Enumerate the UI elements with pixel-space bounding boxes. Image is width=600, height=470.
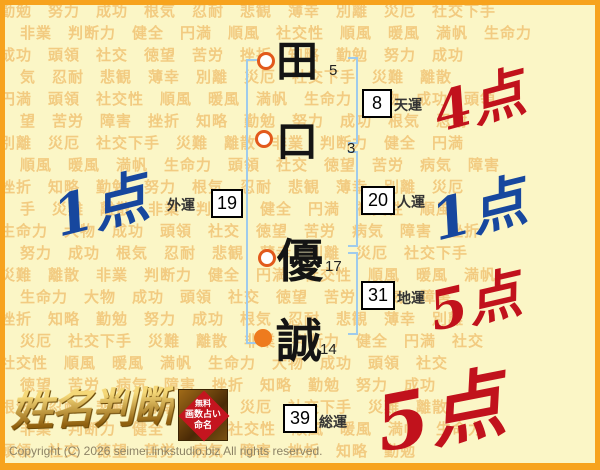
total-luck-score: 5点 <box>365 341 513 470</box>
givenname-char1-circle-icon <box>258 249 276 267</box>
bracket-heaven-luck <box>348 57 358 144</box>
seimei-result-page: 勤勉 努力 成功 根気 忍耐 悲観 薄幸 別離 災厄 社交下手非業 判断力 健全… <box>0 0 600 470</box>
seal-line3: 命名 <box>194 420 212 431</box>
background-word-row: 勤勉 努力 成功 根気 忍耐 悲観 薄幸 別離 災厄 社交下手 <box>0 1 600 23</box>
earth-luck-label: 地運 <box>397 288 425 308</box>
givenname-char1: 優 <box>277 238 323 284</box>
site-logo[interactable]: 姓名判断 <box>9 385 174 434</box>
person-luck-value-box: 20 <box>361 186 395 215</box>
earth-luck-value-box: 31 <box>361 281 395 310</box>
surname-char2-circle-icon <box>255 130 273 148</box>
heaven-luck-label: 天運 <box>394 95 422 115</box>
total-luck-label: 総運 <box>319 412 347 432</box>
surname-char2: 口 <box>276 121 318 163</box>
seal-text: 無料 画数占い 命名 <box>179 390 227 440</box>
givenname-char2: 誠 <box>276 318 322 364</box>
total-luck-value-box: 39 <box>283 404 317 433</box>
person-luck-label: 人運 <box>397 192 425 212</box>
surname-char1: 田 <box>276 41 318 83</box>
outer-luck-label: 外運 <box>167 195 195 215</box>
free-naming-seal-badge[interactable]: 無料 画数占い 命名 <box>178 389 228 441</box>
seal-line1: 無料 <box>195 399 211 409</box>
bracket-person-luck <box>348 151 358 247</box>
bracket-outer-luck <box>246 59 258 344</box>
surname-char1-circle-icon <box>257 52 275 70</box>
copyright-text: Copyright (C) 2026 seimei.linkstudio.biz… <box>9 444 322 458</box>
givenname-char2-strokes: 14 <box>320 341 337 358</box>
givenname-char2-circle-icon <box>254 329 272 347</box>
givenname-char1-strokes: 17 <box>325 258 342 275</box>
seal-line2: 画数占い <box>185 409 221 420</box>
surname-char1-strokes: 5 <box>329 62 337 79</box>
heaven-luck-value-box: 8 <box>362 89 392 118</box>
surname-char2-strokes: 3 <box>347 140 355 157</box>
outer-luck-value-box: 19 <box>211 189 243 218</box>
bracket-earth-luck <box>348 252 358 335</box>
